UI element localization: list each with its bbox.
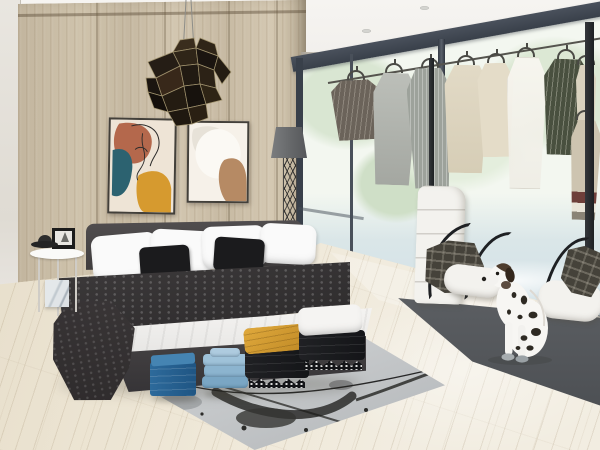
hanger-icon: [385, 63, 403, 73]
folded-layer: [204, 365, 248, 377]
side-table: [28, 220, 92, 318]
hanger-icon: [517, 47, 535, 57]
table-top: [30, 248, 84, 259]
folded-stack-light-blue: [202, 348, 250, 396]
folded-layer: [210, 348, 240, 357]
folded-stack-dark-blue: [150, 354, 198, 400]
folded-layer: [202, 376, 248, 388]
lamp-shade: [271, 127, 307, 158]
pillow: [259, 223, 317, 266]
hanger-icon: [557, 49, 575, 59]
hanger-icon: [347, 70, 365, 80]
photo-picture: [61, 232, 69, 242]
folded-stack-black-white: [298, 306, 366, 372]
garment-beige-dress-striped-hem: [568, 110, 600, 220]
hanger-icon: [457, 55, 475, 65]
table-leg: [75, 256, 77, 312]
white-folded-blanket: [297, 304, 363, 336]
stack-shadow: [204, 390, 250, 398]
geometric-pendant-light: [138, 0, 238, 140]
stack-body: [150, 362, 196, 396]
black-hat-brim: [31, 241, 58, 248]
bedroom-scene: 3D interior render - modern bedroom with…: [0, 0, 600, 450]
hanger-icon: [487, 53, 505, 63]
dalmatian-dog: [478, 260, 558, 366]
table-leg: [38, 256, 40, 312]
marble-cube: [45, 280, 69, 307]
